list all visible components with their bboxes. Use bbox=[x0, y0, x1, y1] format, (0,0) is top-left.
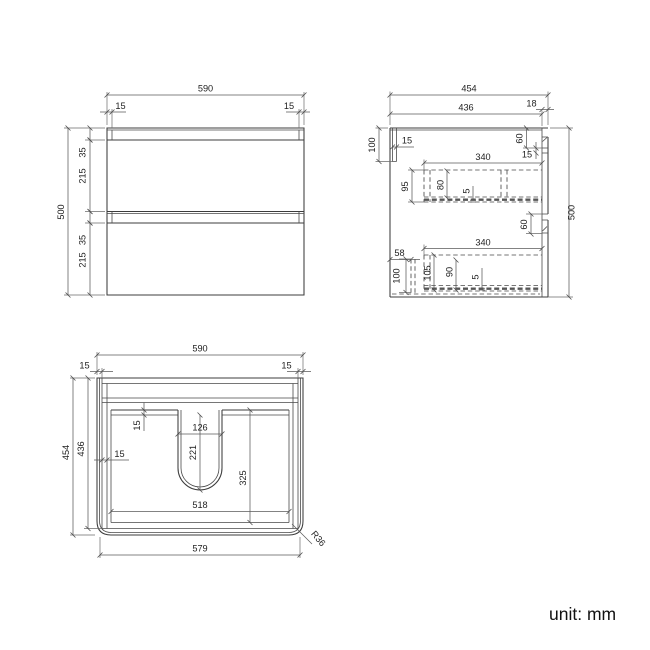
unit-label: unit: mm bbox=[549, 604, 616, 625]
front-dim-drawer-upper: 215 bbox=[78, 168, 88, 183]
vanity-drawing-svg: 590 15 15 500 35 215 35 215 bbox=[0, 0, 650, 650]
plan-dim-side-wall: 15 bbox=[114, 449, 124, 459]
side-dim-box-upper-height: 95 bbox=[400, 181, 410, 191]
front-dim-overall-height: 500 bbox=[56, 204, 66, 219]
plan-view-dimension-lines: 590 15 15 454 436 15 15 126 221 325 518 … bbox=[61, 344, 328, 559]
front-dim-drawer-lower: 215 bbox=[78, 252, 88, 267]
side-dim-top-lip: 15 bbox=[522, 150, 532, 160]
front-dim-middle-gap: 35 bbox=[78, 235, 88, 245]
side-dim-bottom-rail-height: 100 bbox=[392, 268, 402, 283]
side-dim-box-lower-length: 340 bbox=[475, 237, 490, 247]
front-view-dimension-lines: 590 15 15 500 35 215 35 215 bbox=[56, 84, 310, 296]
front-view-outline bbox=[107, 128, 304, 295]
side-dim-box-lower-height: 105 bbox=[423, 265, 433, 280]
plan-dim-inner-width: 518 bbox=[192, 500, 207, 510]
plan-dim-cutout-width: 126 bbox=[192, 423, 207, 433]
plan-dim-corner-radius: R36 bbox=[309, 529, 327, 548]
side-dim-front-panel: 18 bbox=[526, 99, 536, 109]
front-dim-overall-width: 590 bbox=[198, 84, 213, 94]
plan-dim-cutout-depth: 221 bbox=[188, 445, 198, 460]
plan-dim-overall-width: 590 bbox=[192, 344, 207, 354]
side-dim-box-upper-inner: 80 bbox=[436, 180, 446, 190]
side-dim-overall-height: 500 bbox=[567, 205, 577, 220]
side-dim-middle-recess: 60 bbox=[519, 219, 529, 229]
side-dim-overall-depth: 454 bbox=[461, 84, 476, 94]
side-dim-box-lower-inner: 90 bbox=[445, 267, 455, 277]
plan-dim-panel-right: 15 bbox=[281, 361, 291, 371]
side-dim-bottom-rail-offset: 58 bbox=[394, 248, 404, 258]
plan-dim-inner-depth: 325 bbox=[238, 470, 248, 485]
technical-drawing-page: 590 15 15 500 35 215 35 215 bbox=[0, 0, 650, 650]
plan-dim-overall-depth: 454 bbox=[61, 445, 71, 460]
front-view: 590 15 15 500 35 215 35 215 bbox=[56, 84, 310, 296]
side-dim-box-upper-length: 340 bbox=[475, 152, 490, 162]
front-dim-top-gap: 35 bbox=[78, 147, 88, 157]
plan-view: 590 15 15 454 436 15 15 126 221 325 518 … bbox=[61, 344, 328, 559]
plan-dim-back-lip: 15 bbox=[132, 420, 142, 430]
side-dim-rail-thickness: 15 bbox=[402, 136, 412, 146]
front-dim-reveal-left: 15 bbox=[115, 101, 125, 111]
side-dim-rail-height: 100 bbox=[367, 137, 377, 152]
side-view-dimension-lines: 454 436 18 100 15 60 15 340 95 80 5 60 3… bbox=[367, 84, 577, 298]
side-dim-carcass-depth: 436 bbox=[458, 103, 473, 113]
side-dim-box-lower-bottom: 5 bbox=[471, 274, 481, 279]
side-view: 454 436 18 100 15 60 15 340 95 80 5 60 3… bbox=[367, 84, 577, 298]
plan-dim-panel-left: 15 bbox=[79, 361, 89, 371]
plan-dim-carcass-depth: 436 bbox=[76, 441, 86, 456]
plan-dim-front-width: 579 bbox=[192, 544, 207, 554]
side-dim-box-upper-bottom: 5 bbox=[462, 188, 472, 193]
side-dim-top-recess: 60 bbox=[515, 133, 525, 143]
front-dim-reveal-right: 15 bbox=[284, 101, 294, 111]
